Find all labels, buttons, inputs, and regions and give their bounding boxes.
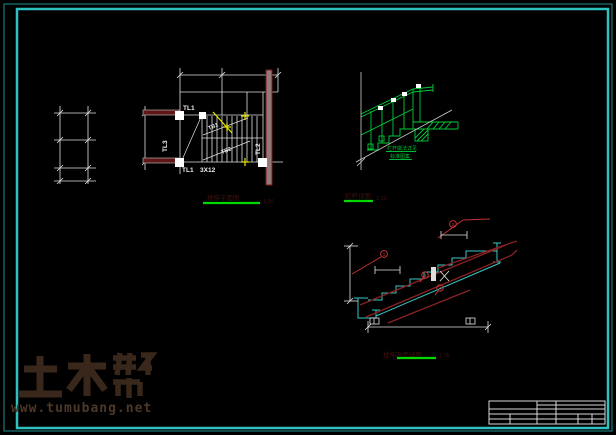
title-block-border bbox=[489, 401, 605, 424]
plan-left-dimension-chain bbox=[54, 106, 148, 184]
beam-bottom bbox=[143, 158, 179, 163]
glyph-tu bbox=[19, 356, 62, 394]
section-title-group: 楼梯剖面详图 1:25 bbox=[383, 350, 450, 359]
beam-label-tl3: TL3 bbox=[162, 140, 169, 152]
plan-title-group: 楼梯平面图 1:50 bbox=[203, 193, 274, 205]
stair-section-detail: 1 2 3 4 楼梯剖面详图 bbox=[344, 219, 517, 359]
railing-note: 栏杆做法详见 标准图集 bbox=[386, 145, 417, 160]
flight-label-up: TB1 bbox=[208, 122, 220, 131]
callout-1: 1 bbox=[383, 252, 386, 257]
railing-note-line2: 标准图集 bbox=[390, 153, 410, 160]
railing-detail-view: 栏杆做法详见 标准图集 栏杆详图 1:20 bbox=[344, 72, 458, 202]
beam-spec-label: 3X12 bbox=[200, 167, 216, 174]
plan-columns bbox=[175, 111, 267, 167]
railing-title-group: 栏杆详图 1:20 bbox=[344, 191, 387, 202]
railing-handrail bbox=[361, 84, 433, 135]
plan-scale: 1:50 bbox=[263, 199, 274, 205]
glyph-mu bbox=[68, 354, 106, 396]
watermark-brand-glyphs bbox=[19, 353, 152, 398]
beam-top bbox=[143, 110, 179, 115]
beam-label-tl1-bottom: TL1 bbox=[182, 167, 194, 174]
cad-canvas: TL1 TL1 3X12 TL3 TL2 TB1 TB2 楼梯平面图 1:50 bbox=[0, 0, 616, 435]
railing-scale: 1:20 bbox=[376, 196, 387, 202]
section-scale: 1:25 bbox=[439, 353, 450, 359]
beam-label-tl1-top: TL1 bbox=[183, 105, 195, 112]
stair-plan-view: TL1 TL1 3X12 TL3 TL2 TB1 TB2 楼梯平面图 1:50 bbox=[54, 68, 283, 205]
railing-title: 栏杆详图 bbox=[345, 191, 371, 200]
beam-label-tl2: TL2 bbox=[255, 143, 262, 155]
railing-landing-slab bbox=[413, 122, 458, 141]
plan-title: 楼梯平面图 bbox=[207, 193, 240, 202]
title-block bbox=[489, 401, 605, 424]
railing-note-line1: 栏杆做法详见 bbox=[387, 145, 417, 152]
plan-section-cut-marks bbox=[213, 112, 249, 166]
cad-viewport: TL1 TL1 3X12 TL3 TL2 TB1 TB2 楼梯平面图 1:50 bbox=[0, 0, 616, 435]
glyph-bang bbox=[113, 353, 152, 398]
wall-right bbox=[266, 70, 272, 185]
